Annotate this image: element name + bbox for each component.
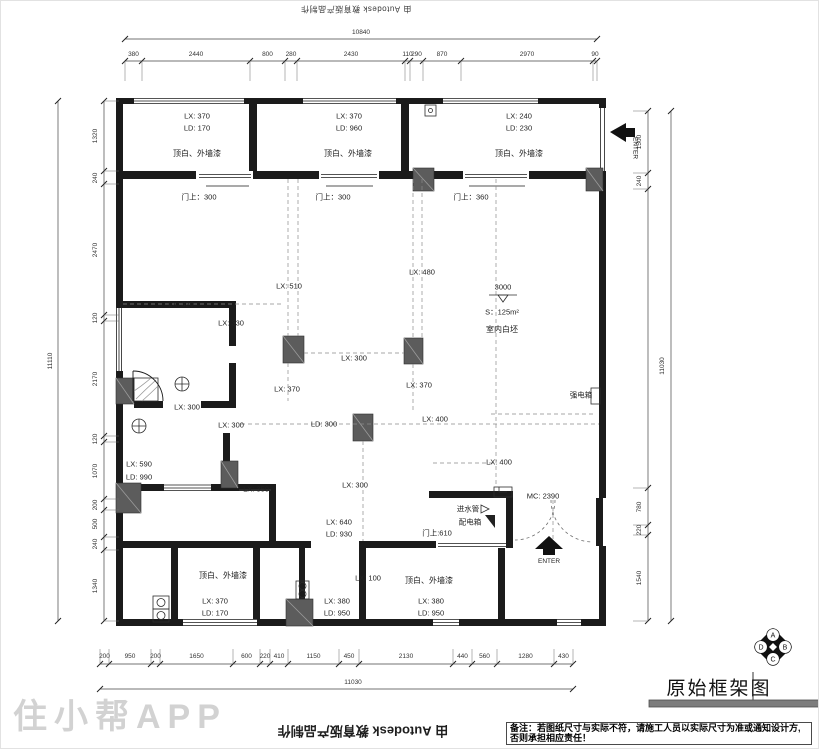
logo-letter-c: C bbox=[770, 657, 775, 664]
note-text: 备注：若图纸尺寸与实际不符，请施工人员以实际尺寸为准或通知设计方,否则承担相应责… bbox=[510, 724, 808, 744]
strong-electric-box-icon bbox=[591, 388, 600, 404]
floor-drain-icon bbox=[175, 377, 189, 391]
autodesk-watermark-bottom: 由 Autodesk 教育版产品制作 bbox=[278, 723, 448, 742]
logo-letter-b: B bbox=[783, 645, 788, 652]
dashed-grid-group bbox=[123, 179, 599, 541]
drawing-title: 原始框架图 bbox=[666, 674, 771, 701]
autodesk-watermark-top: 由 Autodesk 教育版产品制作 bbox=[301, 4, 412, 15]
floor-drain-icon bbox=[132, 419, 146, 433]
water-inlet-icon bbox=[481, 505, 489, 513]
distribution-mark-icon bbox=[485, 515, 495, 528]
title-underline-bar bbox=[649, 700, 819, 707]
flue-icon bbox=[425, 105, 436, 116]
logo-letter-a: A bbox=[771, 633, 776, 640]
logo-letter-d: D bbox=[758, 645, 763, 652]
pipe-shaft-icon bbox=[153, 596, 169, 622]
note-box: 备注：若图纸尺寸与实际不符，请施工人员以实际尺寸为准或通知设计方,否则承担相应责… bbox=[506, 722, 812, 745]
app-watermark: 住小帮APP bbox=[13, 689, 227, 738]
company-logo: A B C D bbox=[754, 628, 792, 666]
enter-arrow-up-icon bbox=[535, 536, 563, 555]
floor-plan-sheet: A B C D LX: 370LD: 170顶白、外墙漆门上：300LX: 37… bbox=[0, 0, 819, 749]
elevation-marker bbox=[489, 295, 517, 302]
enter-arrow-left-icon bbox=[610, 123, 635, 142]
floorplan-canvas: A B C D bbox=[1, 1, 819, 749]
